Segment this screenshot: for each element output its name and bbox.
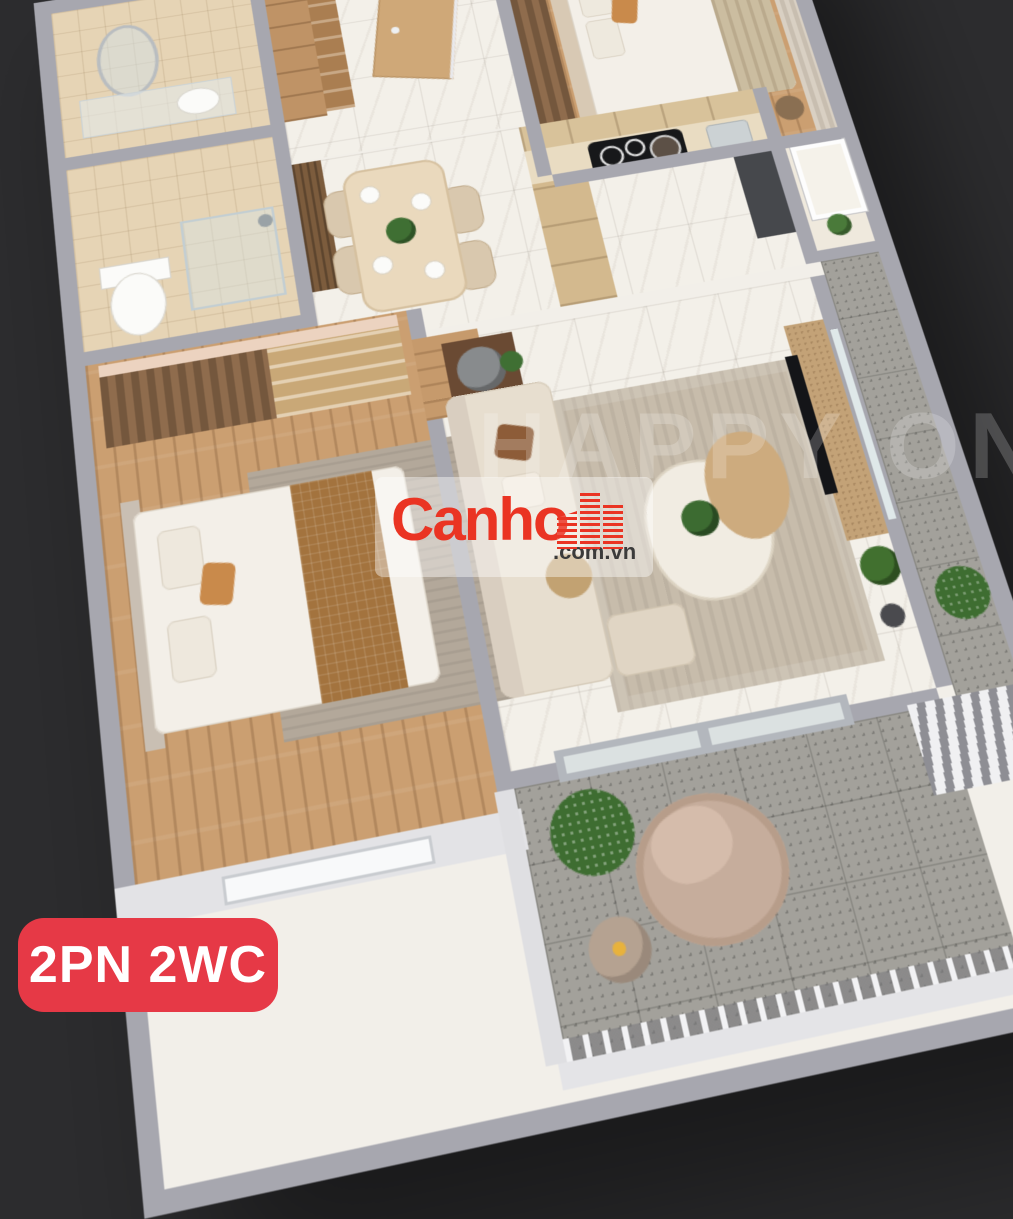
building-bar (580, 493, 600, 549)
master-accent-pillow (199, 562, 236, 605)
unit-type-badge: 2PN 2WC (18, 918, 278, 1012)
buildings-icon (557, 487, 627, 549)
floorplan-render: { "scene": { "description": "3D top-down… (0, 0, 1013, 1024)
apartment-floorplan (34, 0, 1013, 1219)
master-pillow (166, 614, 218, 684)
building-bar (603, 505, 623, 549)
bedroom2-accent-pillow (611, 0, 637, 24)
entrance-door (373, 0, 459, 79)
master-pillow (156, 525, 206, 592)
building-bar (557, 511, 577, 549)
logo-wordmark: Canho (391, 485, 568, 554)
canho-logo: Canho .com.vn (375, 477, 653, 577)
